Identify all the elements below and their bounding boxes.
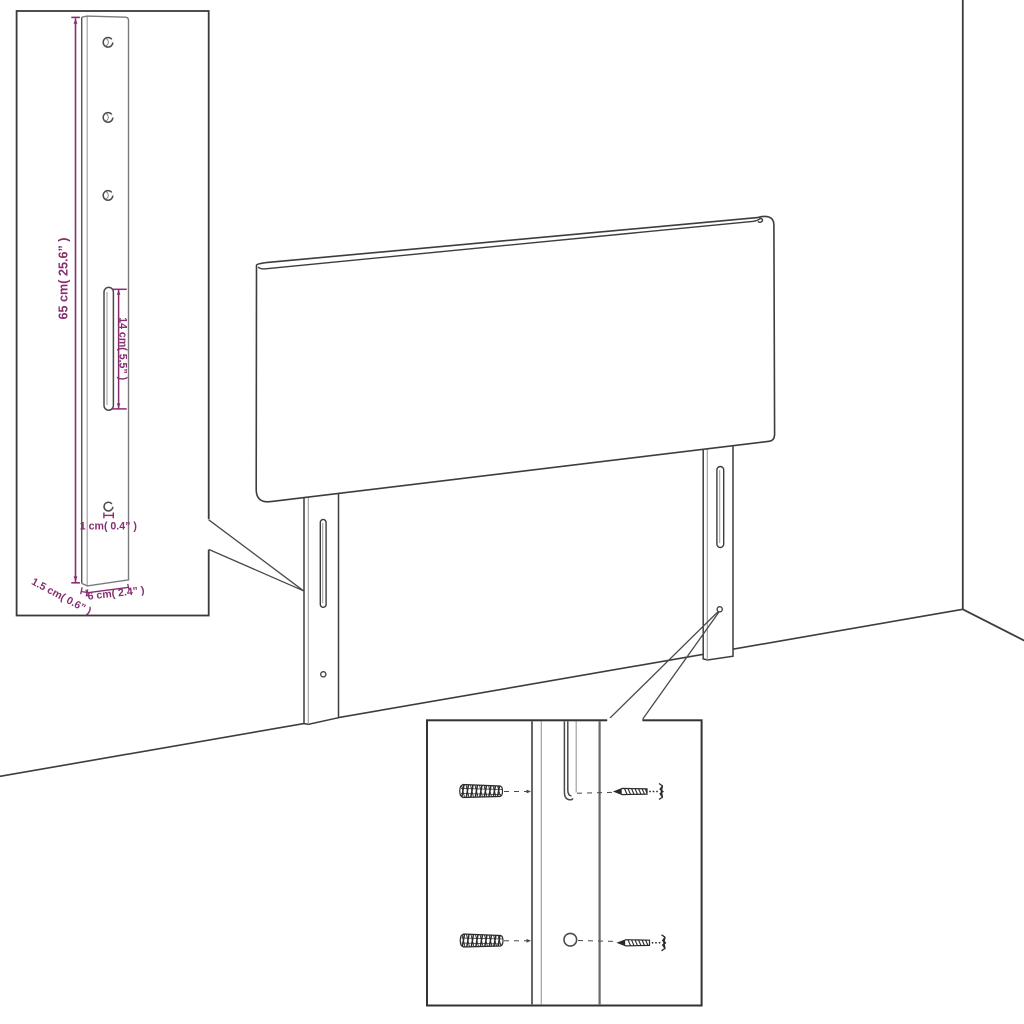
svg-text:14 cm( 5.5” ): 14 cm( 5.5” ) — [116, 317, 128, 380]
svg-text:65 cm( 25.6” ): 65 cm( 25.6” ) — [56, 238, 70, 320]
svg-text:1 cm( 0.4” ): 1 cm( 0.4” ) — [80, 520, 137, 532]
